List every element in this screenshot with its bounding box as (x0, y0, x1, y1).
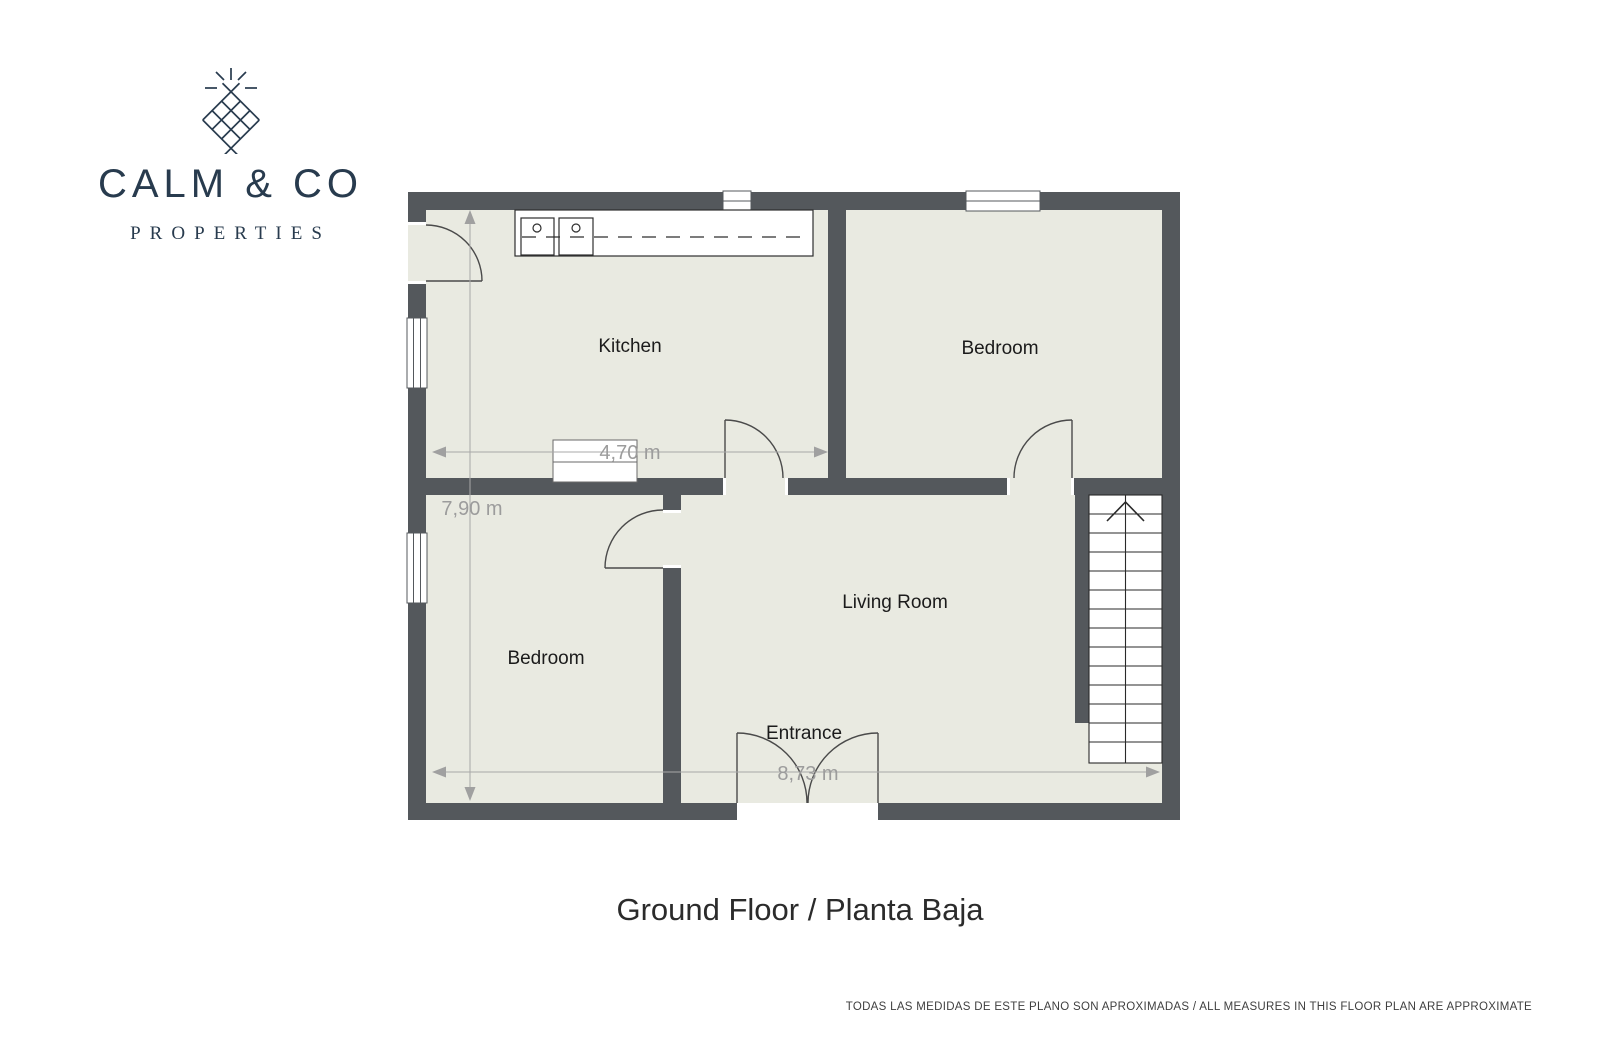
entrance-opening (737, 803, 878, 821)
dimension-kitchen-width: 4,70 m (599, 442, 660, 464)
window-top-bedroom (966, 191, 1040, 211)
page-title: Ground Floor / Planta Baja (0, 892, 1600, 928)
disclaimer-text: TODAS LAS MEDIDAS DE ESTE PLANO SON APRO… (846, 1001, 1532, 1013)
window-top-kitchen (723, 191, 751, 211)
window-left-bedroom (407, 533, 427, 603)
wall-left (408, 192, 426, 820)
wall-right (1162, 192, 1180, 820)
room-label-bedroom-top: Bedroom (961, 338, 1038, 359)
kitchen-counter (515, 210, 813, 256)
room-label-living-room: Living Room (842, 592, 948, 613)
floor-area (426, 210, 1162, 803)
wall-mid-horizontal-2 (788, 478, 1007, 495)
room-label-entrance: Entrance (766, 723, 842, 744)
room-label-kitchen: Kitchen (598, 336, 661, 357)
dimension-plan-width: 8,73 m (777, 763, 838, 785)
wall-top (408, 192, 1180, 210)
page: CALM & CO PROPERTIES (0, 0, 1600, 1053)
window-left-kitchen (407, 318, 427, 388)
wall-kitchen-bedroom (828, 210, 846, 495)
wall-bedroom-living-2 (663, 568, 681, 803)
dimension-plan-height: 7,90 m (441, 498, 502, 520)
wall-mid-horizontal-3 (1074, 478, 1162, 495)
wall-stairs (1075, 495, 1089, 723)
room-label-bedroom-bottom: Bedroom (507, 648, 584, 669)
stairs (1089, 495, 1162, 763)
